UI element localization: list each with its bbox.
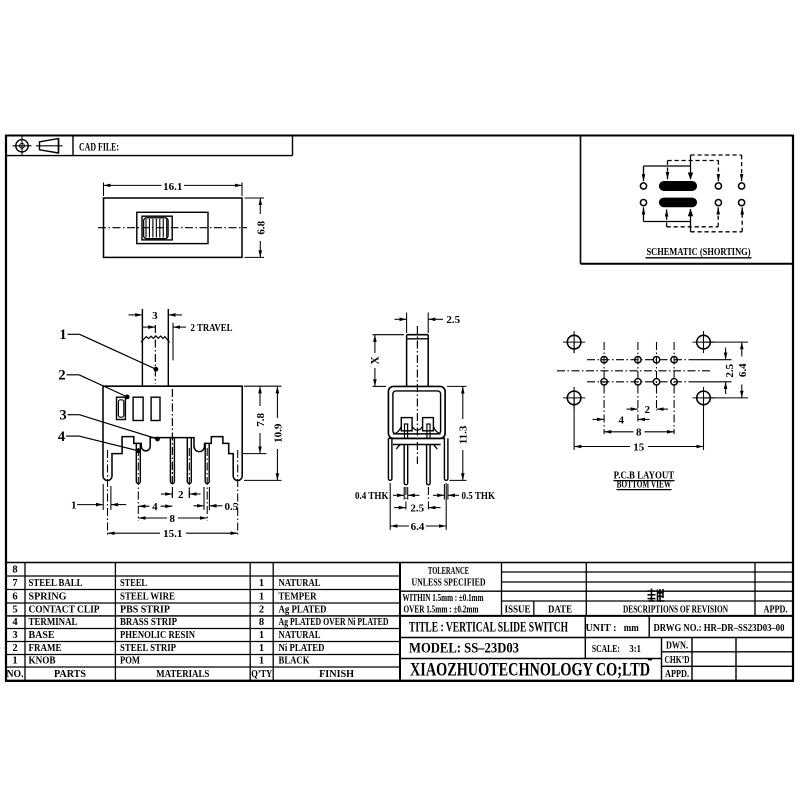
svg-text:KNOB: KNOB <box>29 656 56 667</box>
svg-text:3: 3 <box>59 408 66 424</box>
svg-text:TEMPER: TEMPER <box>279 592 317 603</box>
svg-text:1: 1 <box>259 656 264 667</box>
svg-text:TITLE : VERTICAL SLIDE SWITC: TITLE : VERTICAL SLIDE SWITCH <box>409 619 568 635</box>
svg-text:ISSUE: ISSUE <box>505 604 531 615</box>
svg-text:15: 15 <box>633 441 645 453</box>
svg-text:1: 1 <box>12 656 17 667</box>
svg-text:FINISH: FINISH <box>319 669 354 680</box>
svg-text:XIAOZHUOTECHNOLOGY CO;LTD: XIAOZHUOTECHNOLOGY CO;LTD <box>410 660 650 681</box>
svg-text:0.5: 0.5 <box>225 501 239 513</box>
svg-text:1: 1 <box>259 592 264 603</box>
svg-text:NATURAL: NATURAL <box>279 630 321 641</box>
svg-text:4: 4 <box>152 501 158 513</box>
svg-text:SPRING: SPRING <box>29 592 67 603</box>
svg-text:CAD FILE:: CAD FILE: <box>79 140 119 154</box>
svg-text:4: 4 <box>618 414 624 426</box>
svg-text:4: 4 <box>12 617 18 628</box>
svg-text:STEEL: STEEL <box>120 578 147 589</box>
svg-text:3: 3 <box>12 630 17 641</box>
svg-text:0.5 THK: 0.5 THK <box>462 490 496 502</box>
svg-text:6.8: 6.8 <box>255 220 267 234</box>
svg-text:6: 6 <box>12 592 17 603</box>
svg-text:2: 2 <box>644 404 650 416</box>
svg-text:BRASS STRIP: BRASS STRIP <box>120 617 177 628</box>
svg-text:10.9: 10.9 <box>272 423 284 443</box>
svg-text:STEEL BALL: STEEL BALL <box>29 578 83 589</box>
svg-text:UNIT :: UNIT : <box>586 622 617 634</box>
svg-text:WITHIN 1.5mm : ±0.1mm: WITHIN 1.5mm : ±0.1mm <box>403 593 484 604</box>
svg-text:PBS STRIP: PBS STRIP <box>120 605 171 616</box>
svg-text:11.3: 11.3 <box>457 425 469 444</box>
svg-text:15.1: 15.1 <box>163 528 182 540</box>
svg-text:STEEL STRIP: STEEL STRIP <box>120 643 176 654</box>
svg-text:1: 1 <box>71 500 77 512</box>
svg-text:3:1: 3:1 <box>629 643 641 655</box>
svg-text:7.8: 7.8 <box>255 413 267 427</box>
svg-text:UNLESS SPECIFIED: UNLESS SPECIFIED <box>412 578 486 589</box>
svg-text:2: 2 <box>178 489 184 501</box>
svg-text:16.1: 16.1 <box>163 181 182 193</box>
svg-text:6.4: 6.4 <box>411 521 425 533</box>
svg-text:PARTS: PARTS <box>54 669 86 680</box>
svg-text:NATURAL: NATURAL <box>279 578 321 589</box>
svg-text:8: 8 <box>170 513 176 525</box>
svg-text:APPD.: APPD. <box>665 669 689 680</box>
svg-text:2: 2 <box>259 605 264 616</box>
svg-text:7: 7 <box>12 578 17 589</box>
svg-text:2: 2 <box>12 643 17 654</box>
svg-text:1: 1 <box>259 630 264 641</box>
svg-text:POM: POM <box>120 656 140 667</box>
svg-text:SCALE:: SCALE: <box>592 643 620 655</box>
svg-text:0.4 THK: 0.4 THK <box>355 490 389 502</box>
svg-text:FRAME: FRAME <box>29 643 62 654</box>
svg-text:3: 3 <box>152 310 158 322</box>
svg-text:MATERIALS: MATERIALS <box>156 669 209 680</box>
svg-text:Q’TY: Q’TY <box>251 669 272 680</box>
svg-text:2 TRAVEL: 2 TRAVEL <box>191 322 233 334</box>
svg-text:PHENOLIC RESIN: PHENOLIC RESIN <box>120 630 195 641</box>
svg-text:DWN.: DWN. <box>666 641 688 652</box>
svg-text:2: 2 <box>58 368 65 384</box>
svg-text:TOLERANCE: TOLERANCE <box>428 566 469 577</box>
svg-text:BOTTOM VIEW: BOTTOM VIEW <box>617 478 672 490</box>
svg-text:MODEL: SS–23D03: MODEL: SS–23D03 <box>409 640 519 656</box>
svg-text:DRWG NO.: HR–DR–SS23D03–00: DRWG NO.: HR–DR–SS23D03–00 <box>654 622 785 634</box>
svg-text:CHK’D: CHK’D <box>665 655 690 666</box>
svg-text:NO.: NO. <box>7 669 24 680</box>
svg-text:1: 1 <box>259 643 264 654</box>
svg-text:BLACK: BLACK <box>279 656 311 667</box>
svg-text:2.5: 2.5 <box>724 363 736 377</box>
svg-text:SCHEMATIC (SHORTING): SCHEMATIC (SHORTING) <box>647 246 751 258</box>
svg-text:APPD.: APPD. <box>764 604 788 615</box>
svg-text:6.4: 6.4 <box>737 363 749 377</box>
svg-text:OVER 1.5mm : ±0.2mm: OVER 1.5mm : ±0.2mm <box>404 605 479 616</box>
svg-text:STEEL WIRE: STEEL WIRE <box>120 592 175 603</box>
svg-text:X: X <box>369 356 381 365</box>
svg-text:8: 8 <box>259 617 264 628</box>
svg-text:Ni PLATED: Ni PLATED <box>279 643 325 654</box>
svg-text:5: 5 <box>12 605 17 616</box>
svg-text:2.5: 2.5 <box>446 314 460 326</box>
svg-text:8: 8 <box>12 565 17 576</box>
svg-text:1: 1 <box>59 327 66 343</box>
svg-text:CONTACT CLIP: CONTACT CLIP <box>29 605 101 616</box>
svg-text:DATE: DATE <box>548 604 572 615</box>
svg-text:DESCRIPTIONS OF REVISION: DESCRIPTIONS OF REVISION <box>623 604 728 615</box>
svg-text:TERMINAL: TERMINAL <box>29 617 78 628</box>
svg-text:Ag PLATED OVER Ni PLATED: Ag PLATED OVER Ni PLATED <box>279 617 389 628</box>
svg-text:mm: mm <box>624 622 639 634</box>
svg-text:8: 8 <box>636 427 642 439</box>
svg-text:2.5: 2.5 <box>410 503 424 515</box>
svg-text:4: 4 <box>58 429 65 445</box>
svg-text:1: 1 <box>259 578 264 589</box>
svg-text:BASE: BASE <box>29 630 55 641</box>
svg-text:Ag PLATED: Ag PLATED <box>279 605 327 616</box>
